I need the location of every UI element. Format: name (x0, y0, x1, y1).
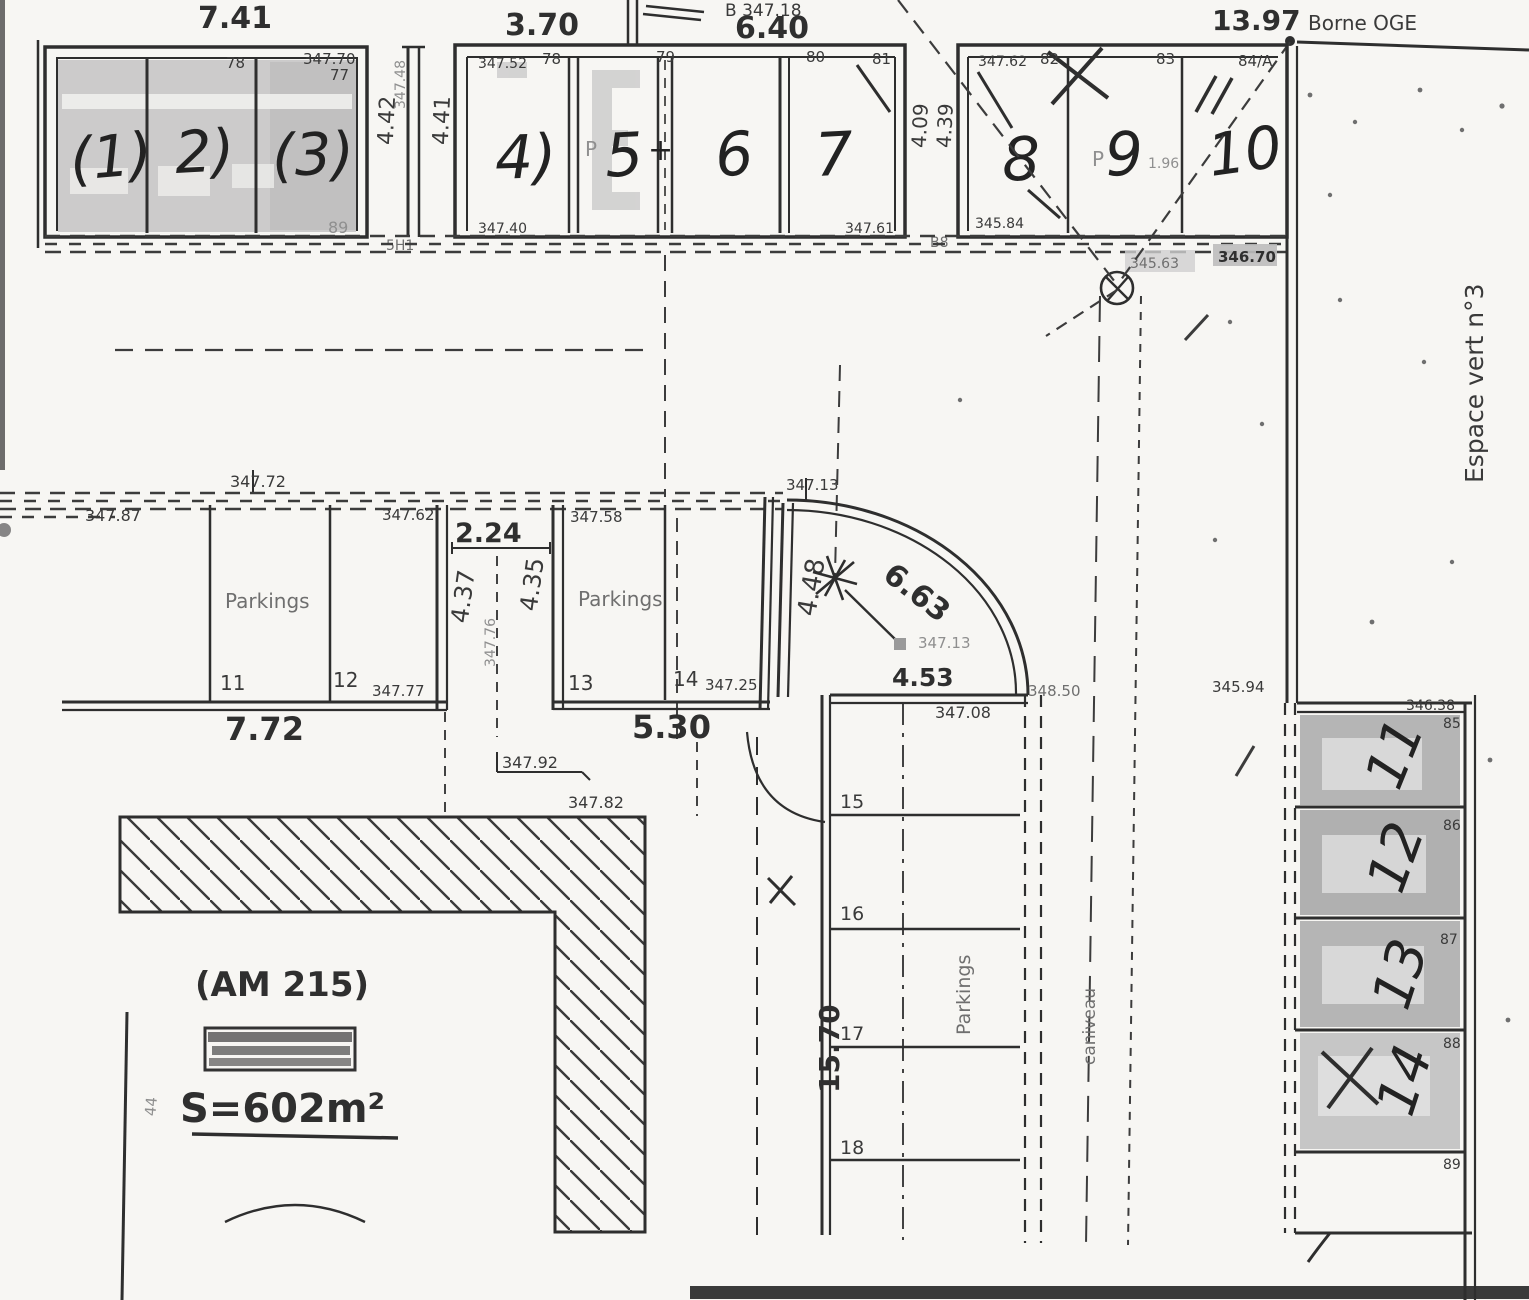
dim-13-97: 13.97 (1212, 4, 1301, 37)
bottom-left-annotations: (AM 215) S=602m² 44 (122, 965, 398, 1300)
garage-9-number: 9 (1103, 119, 1145, 191)
dim-4-41: 4.41 (429, 95, 457, 145)
plus-mark: + (648, 133, 673, 168)
plot-79: 79 (656, 48, 675, 66)
elev-347-62-top: 347.62 (978, 54, 1027, 70)
slash-marks-box10 (1196, 76, 1232, 114)
gap-1-dimensions: 347.48 4.42 4.41 5H1 (374, 47, 457, 254)
elev-347-87: 347.87 (85, 506, 141, 525)
elev-345-84: 345.84 (975, 216, 1024, 232)
garage-2-number: 2) (173, 116, 236, 187)
garage-group-2: 3.70 6.40 B 347.18 347.52 78 79 80 81 34… (455, 1, 905, 237)
dim-4-37: 4.37 (446, 568, 481, 625)
site-plan-scan: 7.41 78 347.70 77 89 (1) 2) (3) 347.48 4… (0, 0, 1529, 1300)
elev-345-94: 345.94 (1212, 678, 1265, 696)
turning-arc: 4.48 6.63 347.13 4.53 348.50 (747, 500, 1081, 822)
stall-13-label: 13 (568, 671, 593, 695)
elev-347-92: 347.92 (502, 753, 558, 772)
plan-drawing: 7.41 78 347.70 77 89 (1) 2) (3) 347.48 4… (0, 0, 1529, 1300)
garage-6-number: 6 (712, 119, 756, 192)
stall-18-label: 18 (840, 1137, 864, 1159)
dim-4-39: 4.39 (932, 103, 958, 149)
plot-89: 89 (1443, 1157, 1461, 1173)
parcel-am-215: (AM 215) (195, 965, 369, 1005)
garage-7-number: 7 (813, 119, 855, 191)
elev-346-38: 346.38 (1406, 698, 1455, 714)
garage-10-number: 10 (1204, 112, 1287, 190)
stall-15-label: 15 (840, 791, 864, 813)
survey-point-dot (894, 638, 906, 650)
elev-347-13-arc: 347.13 (918, 634, 971, 652)
plot-78-g1: 78 (226, 54, 245, 72)
garage-4-number: 4) (494, 122, 558, 194)
dim-6-63: 6.63 (877, 557, 957, 630)
elev-347-92-callout: 347.92 (497, 752, 590, 780)
stall-16-label: 16 (840, 903, 864, 925)
elev-347-62-mid: 347.62 (382, 506, 435, 524)
parkings-label-south: Parkings (953, 955, 975, 1035)
elev-347-52: 347.52 (478, 56, 527, 72)
plot-88: 88 (1443, 1036, 1461, 1052)
elev-348-50: 348.50 (1028, 682, 1081, 700)
right-property-line: Espace vert n°3 (1287, 40, 1529, 703)
plot-86: 86 (1443, 818, 1461, 834)
elev-347-61: 347.61 (845, 221, 894, 237)
plot-81: 81 (872, 50, 891, 68)
plot-85: 85 (1443, 716, 1461, 732)
dim-7-72: 7.72 (225, 710, 304, 748)
garage-8-number: 8 (1001, 124, 1042, 195)
garage-group-1: 7.41 78 347.70 77 89 (1) 2) (3) (38, 1, 367, 248)
plot-87: 87 (1440, 932, 1458, 948)
elev-347-25: 347.25 (705, 676, 758, 694)
elev-347-08: 347.08 (935, 703, 991, 722)
dim-15-70: 15.70 (813, 1004, 846, 1093)
note-44: 44 (141, 1096, 161, 1117)
x-mark-dashed-line (768, 876, 795, 905)
garage-group-3: 13.97 Borne OGE 347.62 82 83 84/A 8 P 9 … (958, 4, 1417, 237)
dim-5-30: 5.30 (632, 708, 711, 746)
p-mark-9: P (1092, 147, 1104, 171)
parking-stalls-left: Parkings 11 12 347.77 7.72 (62, 505, 447, 748)
bottom-curve (225, 1205, 365, 1222)
elev-347-72: 347.72 (230, 472, 286, 491)
dim-7-41: 7.41 (198, 1, 272, 36)
p-mark-5: P (585, 137, 597, 161)
espace-vert-label: Espace vert n°3 (1460, 283, 1489, 483)
dim-4-42: 4.42 (374, 95, 402, 145)
dim-3-70: 3.70 (505, 8, 579, 43)
elev-347-40: 347.40 (478, 221, 527, 237)
middle-walls: 2.24 4.37 347.76 4.35 (437, 505, 563, 737)
borne-oge-label: Borne OGE (1308, 11, 1417, 35)
south-parking-column: 347.08 15 16 17 18 15.70 Parkings canive… (757, 695, 1100, 1245)
stall-12-label: 12 (333, 668, 358, 692)
stall-14-label: 14 (673, 667, 698, 691)
manhole-symbol (1101, 272, 1133, 304)
elev-347-13-top: 347.13 (786, 476, 839, 494)
curb-curve (747, 732, 825, 822)
elev-347-77: 347.77 (372, 682, 425, 700)
dim-4-09: 4.09 (907, 103, 933, 149)
note-1-96: 1.96 (1148, 156, 1179, 172)
top-access-lines (628, 0, 704, 44)
garage-3-number: (3) (271, 119, 355, 190)
elev-347-82: 347.82 (568, 793, 624, 812)
garage-5-number: 5 (603, 120, 645, 192)
stall-11-label: 11 (220, 671, 245, 695)
plot-84a: 84/A (1238, 52, 1273, 70)
caniveau-label: caniveau (1080, 988, 1100, 1065)
right-column-boxes: 346.38 85 86 87 88 89 345.94 11 12 13 14 (1212, 678, 1475, 1300)
note-89: 89 (328, 218, 348, 237)
parkings-label-left: Parkings (225, 589, 310, 613)
gap-2-dimensions: 4.09 4.39 B8 (907, 103, 958, 251)
parkings-label-right: Parkings (578, 587, 663, 611)
plot-78-g2: 78 (542, 50, 561, 68)
parking-stalls-right: Parkings 13 14 347.25 5.30 (553, 497, 773, 746)
plot-80: 80 (806, 48, 825, 66)
elev-347-76: 347.76 (483, 618, 499, 667)
garage-1-number: (1) (67, 119, 155, 194)
elev-347-58: 347.58 (570, 508, 623, 526)
dim-4-35: 4.35 (515, 556, 550, 613)
elev-346-70: 346.70 (1218, 248, 1276, 266)
crossed-out-text (205, 1028, 355, 1070)
point-b-label: B 347.18 (725, 1, 802, 21)
plot-83: 83 (1156, 50, 1175, 68)
dim-2-24: 2.24 (455, 518, 522, 549)
surface-area-label: S=602m² (180, 1086, 385, 1132)
plot-77: 77 (330, 66, 349, 84)
dim-4-53: 4.53 (892, 663, 954, 692)
plot-82: 82 (1040, 50, 1059, 68)
